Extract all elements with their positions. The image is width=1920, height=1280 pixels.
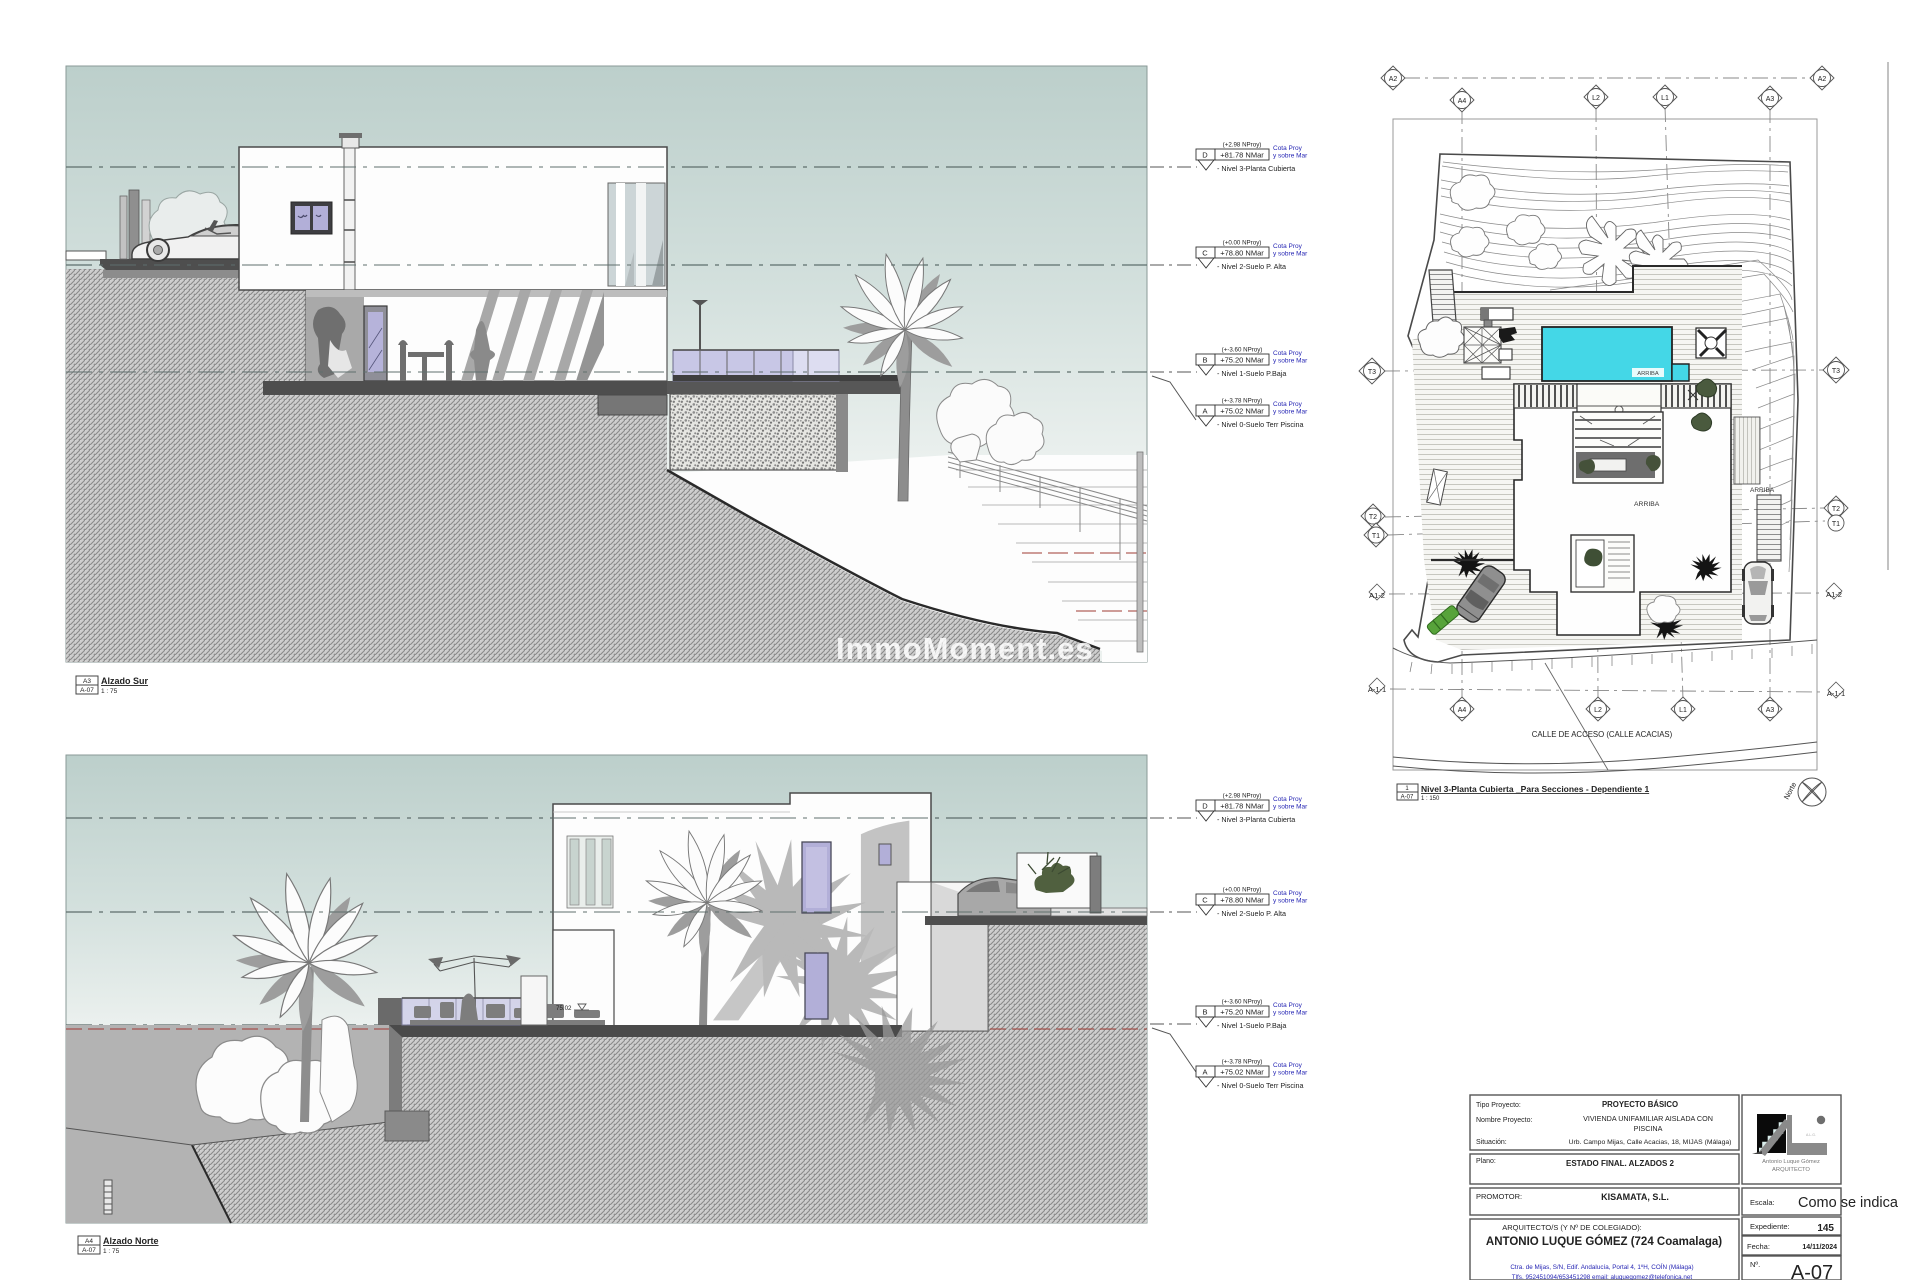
svg-text:ARQUITECTO: ARQUITECTO [1772,1167,1810,1173]
svg-text:- Nivel 3-Planta Cubierta: - Nivel 3-Planta Cubierta [1217,164,1295,173]
svg-text:+81.78 NMar: +81.78 NMar [1220,151,1264,160]
svg-text:+75.02 NMar: +75.02 NMar [1220,407,1264,416]
svg-text:ARRIBA: ARRIBA [1634,501,1660,508]
svg-text:(+-3.60 NProy): (+-3.60 NProy) [1222,999,1263,1006]
svg-text:Plano:: Plano: [1476,1158,1496,1165]
svg-text:(+-3.78 NProy): (+-3.78 NProy) [1222,1059,1263,1066]
svg-text:(+0.00 NProy): (+0.00 NProy) [1223,240,1262,247]
svg-text:Tlfs. 952451094/653451298 ema: Tlfs. 952451094/653451298 email: aluqueg… [1512,1274,1693,1280]
svg-text:Nº.: Nº. [1750,1260,1760,1269]
svg-text:Antonio Luque Gómez: Antonio Luque Gómez [1762,1159,1820,1165]
svg-text:Cota Proy: Cota Proy [1273,1062,1303,1069]
svg-text:D: D [1202,802,1208,811]
svg-text:ARQUITECTO/S (Y Nº DE COLEGIAD: ARQUITECTO/S (Y Nº DE COLEGIADO): [1502,1223,1642,1232]
svg-text:T1: T1 [1372,533,1380,540]
svg-text:Nombre Proyecto:: Nombre Proyecto: [1476,1117,1532,1124]
svg-text:Situación:: Situación: [1476,1139,1507,1146]
svg-text:ARRIBA: ARRIBA [1637,371,1659,377]
svg-text:(+-3.78 NProy): (+-3.78 NProy) [1222,398,1263,405]
svg-text:L1: L1 [1679,707,1687,714]
svg-text:145: 145 [1817,1223,1834,1234]
svg-text:Cota Proy: Cota Proy [1273,145,1303,152]
svg-text:Alzado Sur: Alzado Sur [101,676,149,686]
svg-text:Cota Proy: Cota Proy [1273,401,1303,408]
svg-text:75.02: 75.02 [556,1005,572,1012]
svg-text:+78.80 NMar: +78.80 NMar [1220,249,1264,258]
svg-text:Fecha:: Fecha: [1747,1242,1770,1251]
svg-text:- Nivel 2-Suelo P. Alta: - Nivel 2-Suelo P. Alta [1217,909,1286,918]
svg-text:A1-2: A1-2 [1369,591,1385,600]
svg-text:B: B [1202,1008,1207,1017]
svg-text:A-07: A-07 [1401,795,1414,801]
svg-text:+75.20 NMar: +75.20 NMar [1220,1008,1264,1017]
svg-text:A3: A3 [83,678,91,685]
svg-text:+75.02 NMar: +75.02 NMar [1220,1068,1264,1077]
svg-text:PISCINA: PISCINA [1634,1124,1663,1133]
svg-text:A-07: A-07 [80,687,94,694]
svg-text:ANTONIO LUQUE GÓMEZ (724 Coama: ANTONIO LUQUE GÓMEZ (724 Coamalaga) [1486,1235,1722,1248]
svg-text:A.L.G.: A.L.G. [1806,1133,1816,1137]
svg-text:y sobre Mar: y sobre Mar [1273,409,1308,416]
svg-text:+78.80 NMar: +78.80 NMar [1220,896,1264,905]
svg-text:Cota Proy: Cota Proy [1273,350,1303,357]
svg-text:B: B [1202,356,1207,365]
svg-text:Urb. Campo Mijas, Calle Acacia: Urb. Campo Mijas, Calle Acacias, 18, MIJ… [1569,1139,1732,1146]
svg-text:A3: A3 [1766,707,1775,714]
svg-text:+81.78 NMar: +81.78 NMar [1220,802,1264,811]
svg-text:Como se indica: Como se indica [1798,1195,1899,1211]
svg-text:ARRIBA: ARRIBA [1750,487,1775,494]
svg-text:(+2.98 NProy): (+2.98 NProy) [1223,793,1262,800]
svg-text:A4: A4 [1458,707,1467,714]
svg-text:T1: T1 [1832,521,1840,528]
svg-text:y sobre Mar: y sobre Mar [1273,804,1308,811]
svg-text:KISAMATA, S.L.: KISAMATA, S.L. [1601,1192,1669,1202]
svg-text:- Nivel 1-Suelo P.Baja: - Nivel 1-Suelo P.Baja [1217,1021,1286,1030]
svg-text:T3: T3 [1368,369,1376,376]
svg-text:- Nivel 3-Planta Cubierta: - Nivel 3-Planta Cubierta [1217,815,1295,824]
svg-text:+75.20 NMar: +75.20 NMar [1220,356,1264,365]
svg-text:1 : 75: 1 : 75 [103,1248,120,1255]
svg-text:y sobre Mar: y sobre Mar [1273,1070,1308,1077]
svg-text:Tipo Proyecto:: Tipo Proyecto: [1476,1102,1521,1109]
svg-text:(+2.98 NProy): (+2.98 NProy) [1223,142,1262,149]
svg-text:Ctra. de Mijas, S/N, Edif. And: Ctra. de Mijas, S/N, Edif. Andalucía, Po… [1510,1262,1693,1271]
svg-text:PROMOTOR:: PROMOTOR: [1476,1192,1522,1201]
svg-text:ImmoMoment.es: ImmoMoment.es [836,631,1094,666]
svg-text:T2: T2 [1369,514,1377,521]
svg-text:Cota Proy: Cota Proy [1273,796,1303,803]
svg-text:- Nivel 1-Suelo P.Baja: - Nivel 1-Suelo P.Baja [1217,369,1286,378]
svg-text:A-07: A-07 [82,1247,96,1254]
svg-text:L1: L1 [1661,95,1669,102]
svg-text:(+0.00 NProy): (+0.00 NProy) [1223,887,1262,894]
svg-text:A2: A2 [1818,76,1827,83]
svg-text:Expediente:: Expediente: [1750,1222,1790,1231]
svg-text:L2: L2 [1594,707,1602,714]
svg-text:- Nivel 0-Suelo Terr Piscina: - Nivel 0-Suelo Terr Piscina [1217,1081,1304,1090]
svg-text:Nivel 3-Planta Cubierta _Para: Nivel 3-Planta Cubierta _Para Secciones … [1421,784,1649,794]
svg-text:D: D [1202,151,1208,160]
svg-text:PROYECTO BÁSICO: PROYECTO BÁSICO [1602,1100,1678,1109]
svg-text:Alzado Norte: Alzado Norte [103,1236,159,1246]
svg-text:Escala:: Escala: [1750,1198,1775,1207]
svg-text:A4: A4 [85,1238,93,1245]
svg-text:y sobre Mar: y sobre Mar [1273,1010,1308,1017]
svg-text:C: C [1202,249,1208,258]
svg-text:1 : 75: 1 : 75 [101,688,118,695]
svg-text:Cota Proy: Cota Proy [1273,243,1303,250]
svg-text:A3: A3 [1766,96,1775,103]
svg-text:- Nivel 2-Suelo P. Alta: - Nivel 2-Suelo P. Alta [1217,262,1286,271]
svg-text:L2: L2 [1592,95,1600,102]
svg-text:14/11/2024: 14/11/2024 [1802,1244,1837,1251]
svg-text:A-1-1: A-1-1 [1827,689,1845,698]
svg-text:Cota Proy: Cota Proy [1273,890,1303,897]
svg-text:A-1-1: A-1-1 [1368,685,1386,694]
svg-text:(+-3.60 NProy): (+-3.60 NProy) [1222,347,1263,354]
svg-text:A: A [1202,1068,1207,1077]
svg-text:T3: T3 [1832,368,1840,375]
svg-text:y sobre Mar: y sobre Mar [1273,153,1308,160]
svg-text:ESTADO FINAL. ALZADOS 2: ESTADO FINAL. ALZADOS 2 [1566,1159,1675,1168]
svg-text:Cota Proy: Cota Proy [1273,1002,1303,1009]
svg-text:A-07: A-07 [1791,1262,1833,1280]
svg-text:A: A [1202,407,1207,416]
svg-text:VIVIENDA UNIFAMILIAR AISLADA C: VIVIENDA UNIFAMILIAR AISLADA CON [1583,1114,1713,1123]
svg-text:A2: A2 [1389,76,1398,83]
svg-text:y sobre Mar: y sobre Mar [1273,898,1308,905]
svg-text:CALLE DE ACCESO (CALLE ACACIAS: CALLE DE ACCESO (CALLE ACACIAS) [1532,730,1673,739]
svg-text:y sobre Mar: y sobre Mar [1273,358,1308,365]
svg-text:A4: A4 [1458,98,1467,105]
svg-text:- Nivel 0-Suelo Terr Piscina: - Nivel 0-Suelo Terr Piscina [1217,420,1304,429]
svg-text:T2: T2 [1832,506,1840,513]
svg-text:y sobre Mar: y sobre Mar [1273,251,1308,258]
svg-text:A1-2: A1-2 [1826,590,1842,599]
svg-text:C: C [1202,896,1208,905]
svg-text:1 : 150: 1 : 150 [1421,796,1440,802]
